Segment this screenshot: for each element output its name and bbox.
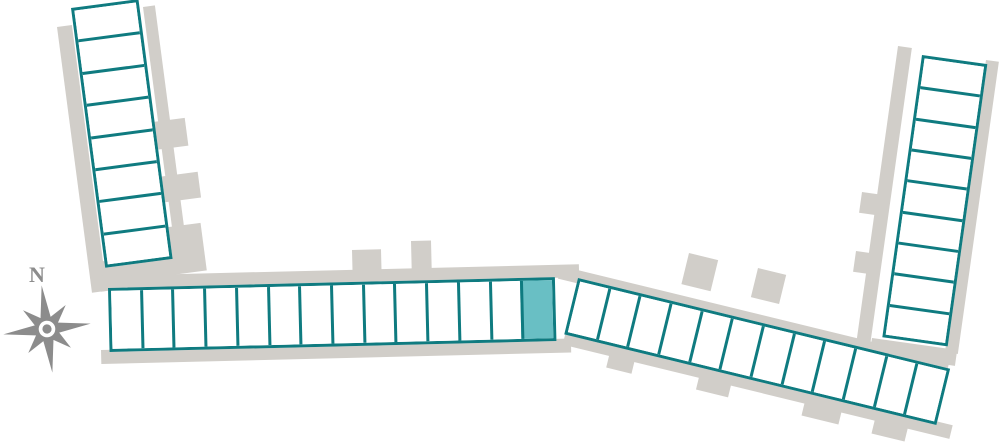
pavement-southeast-bump-1 (681, 253, 718, 291)
south-row-unit-13[interactable] (489, 281, 522, 340)
south-row-unit-1[interactable] (111, 290, 141, 349)
compass-rose: N (0, 256, 100, 376)
south-row-unit-9[interactable] (362, 284, 395, 343)
south-row-unit-10[interactable] (393, 283, 426, 342)
south-row-unit-5[interactable] (235, 287, 268, 346)
building-south-row (108, 277, 556, 352)
south-row-unit-14-selected[interactable] (520, 280, 553, 339)
south-row-unit-6[interactable] (267, 286, 300, 345)
south-row-unit-3[interactable] (171, 289, 204, 348)
pavement-east-bump-2 (853, 251, 881, 275)
south-row-unit-8[interactable] (330, 285, 363, 344)
south-row-unit-7[interactable] (298, 286, 331, 345)
pavement-east-bump-1 (859, 192, 888, 216)
south-row-unit-4[interactable] (203, 288, 236, 347)
site-map: N (0, 0, 1000, 445)
pavement-southeast-bump-2 (751, 268, 786, 304)
south-row-unit-12[interactable] (457, 282, 490, 341)
compass-star (0, 280, 96, 376)
pavement-west-bump-1 (153, 118, 188, 150)
south-row-unit-11[interactable] (425, 282, 458, 341)
pavement-south-bump-1 (352, 249, 382, 280)
west-column-unit-8[interactable] (104, 224, 170, 264)
compass-north-label: N (29, 262, 45, 287)
south-row-unit-2[interactable] (140, 289, 173, 348)
pavement-south-bump-2 (411, 241, 432, 279)
